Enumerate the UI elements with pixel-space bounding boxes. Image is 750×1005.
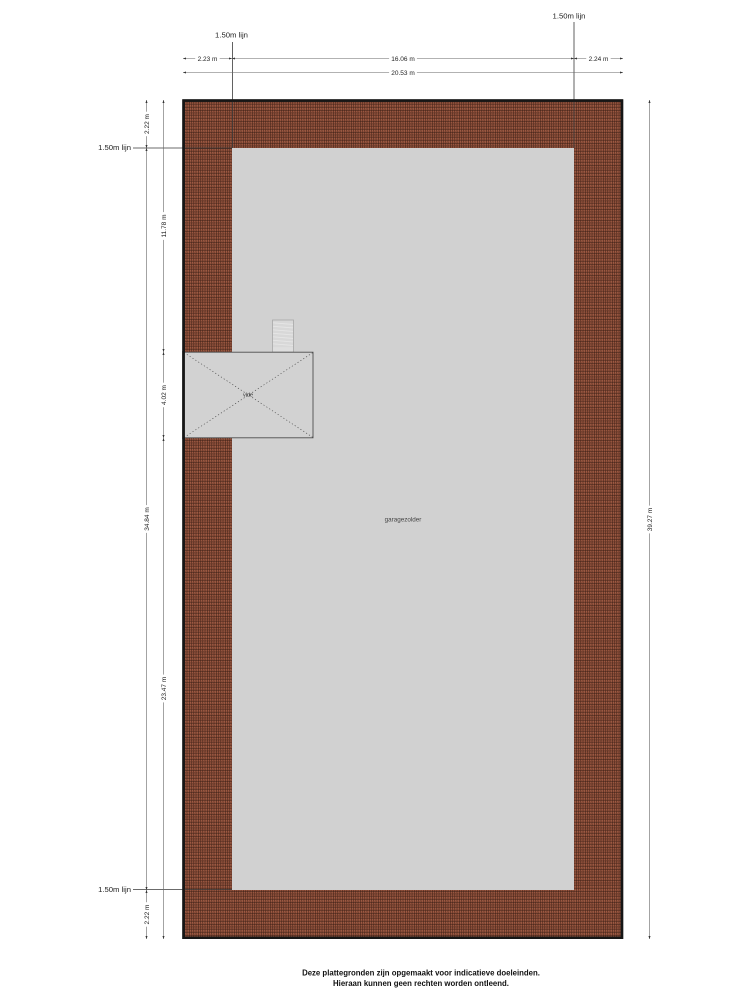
svg-text:Hieraan kunnen geen rechten wo: Hieraan kunnen geen rechten worden ontle… — [333, 979, 509, 988]
svg-text:23.47 m: 23.47 m — [161, 677, 168, 701]
svg-text:4.02 m: 4.02 m — [161, 385, 168, 405]
svg-text:34.84 m: 34.84 m — [144, 507, 151, 531]
svg-text:garagezolder: garagezolder — [385, 517, 422, 524]
svg-text:1.50m lijn: 1.50m lijn — [553, 12, 586, 21]
svg-text:2.22 m: 2.22 m — [144, 114, 151, 134]
svg-text:1.50m lijn: 1.50m lijn — [98, 885, 131, 894]
svg-text:1.50m lijn: 1.50m lijn — [215, 31, 248, 40]
svg-text:20.53 m: 20.53 m — [391, 70, 415, 77]
svg-text:16.06 m: 16.06 m — [391, 56, 415, 63]
svg-text:39.27 m: 39.27 m — [647, 508, 654, 532]
svg-text:2.23 m: 2.23 m — [198, 56, 218, 63]
svg-text:2.22 m: 2.22 m — [144, 905, 151, 925]
svg-text:11.78 m: 11.78 m — [161, 214, 168, 237]
svg-text:vide: vide — [243, 393, 253, 399]
svg-text:2.24 m: 2.24 m — [589, 56, 609, 63]
svg-text:Deze plattegronden zijn opgema: Deze plattegronden zijn opgemaakt voor i… — [302, 969, 540, 978]
svg-text:1.50m lijn: 1.50m lijn — [98, 143, 131, 152]
